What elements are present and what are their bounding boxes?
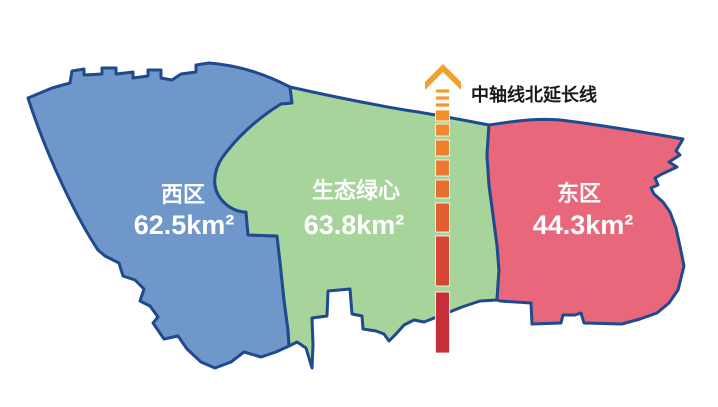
- axis-arrow-up-icon: [425, 64, 461, 90]
- district-planning-map: 中轴线北延长线 西区 62.5km² 生态绿心 63.8km² 东区 44.3k…: [0, 0, 718, 407]
- region-east-area: 44.3km²: [533, 210, 634, 240]
- axis-label: 中轴线北延长线: [471, 84, 597, 105]
- region-green-heart-area: 63.8km²: [304, 210, 405, 240]
- axis-dash: [436, 124, 450, 136]
- region-west-name: 西区: [161, 182, 205, 207]
- map-canvas: 中轴线北延长线 西区 62.5km² 生态绿心 63.8km² 东区 44.3k…: [0, 0, 718, 407]
- axis-dash: [436, 160, 450, 176]
- axis-dash: [436, 292, 450, 353]
- axis-dash: [436, 140, 450, 156]
- axis-dash: [436, 180, 450, 198]
- axis-dash: [436, 236, 450, 286]
- axis-dash: [436, 203, 450, 232]
- axis-dash: [436, 110, 450, 121]
- axis-dash: [436, 89, 450, 93]
- region-east-name: 东区: [557, 181, 601, 206]
- axis-dash-line: [436, 89, 450, 353]
- axis-dash: [436, 103, 450, 107]
- axis-dash: [436, 96, 450, 100]
- region-west-area: 62.5km²: [134, 210, 235, 240]
- region-green-heart-name: 生态绿心: [312, 178, 400, 203]
